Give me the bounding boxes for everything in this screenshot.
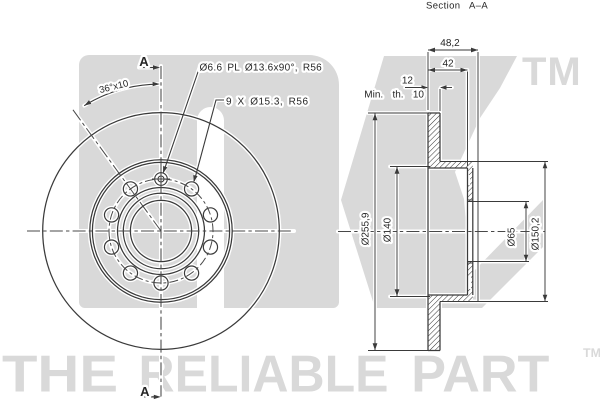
svg-text:Ø140: Ø140 bbox=[383, 217, 394, 242]
svg-text:Ø150,2: Ø150,2 bbox=[531, 217, 542, 250]
svg-text:Ø255,9: Ø255,9 bbox=[361, 212, 372, 245]
svg-text:12: 12 bbox=[402, 76, 414, 87]
svg-text:TM: TM bbox=[583, 346, 600, 360]
svg-text:Min. th. 10: Min. th. 10 bbox=[364, 90, 424, 101]
svg-text:A: A bbox=[139, 54, 149, 69]
svg-text:Ø65: Ø65 bbox=[507, 227, 518, 246]
svg-text:Section A–A: Section A–A bbox=[426, 1, 488, 12]
svg-text:A: A bbox=[140, 384, 150, 399]
svg-text:RELIABLE: RELIABLE bbox=[139, 346, 389, 400]
svg-text:THE: THE bbox=[2, 346, 118, 400]
svg-text:TM: TM bbox=[522, 50, 582, 94]
svg-text:Ø6.6 PL Ø13.6x90°, R56: Ø6.6 PL Ø13.6x90°, R56 bbox=[200, 62, 323, 73]
svg-text:PART: PART bbox=[411, 346, 549, 400]
svg-text:48,2: 48,2 bbox=[440, 38, 460, 49]
svg-text:9 X Ø15.3, R56: 9 X Ø15.3, R56 bbox=[226, 96, 309, 107]
svg-text:42: 42 bbox=[442, 59, 454, 70]
